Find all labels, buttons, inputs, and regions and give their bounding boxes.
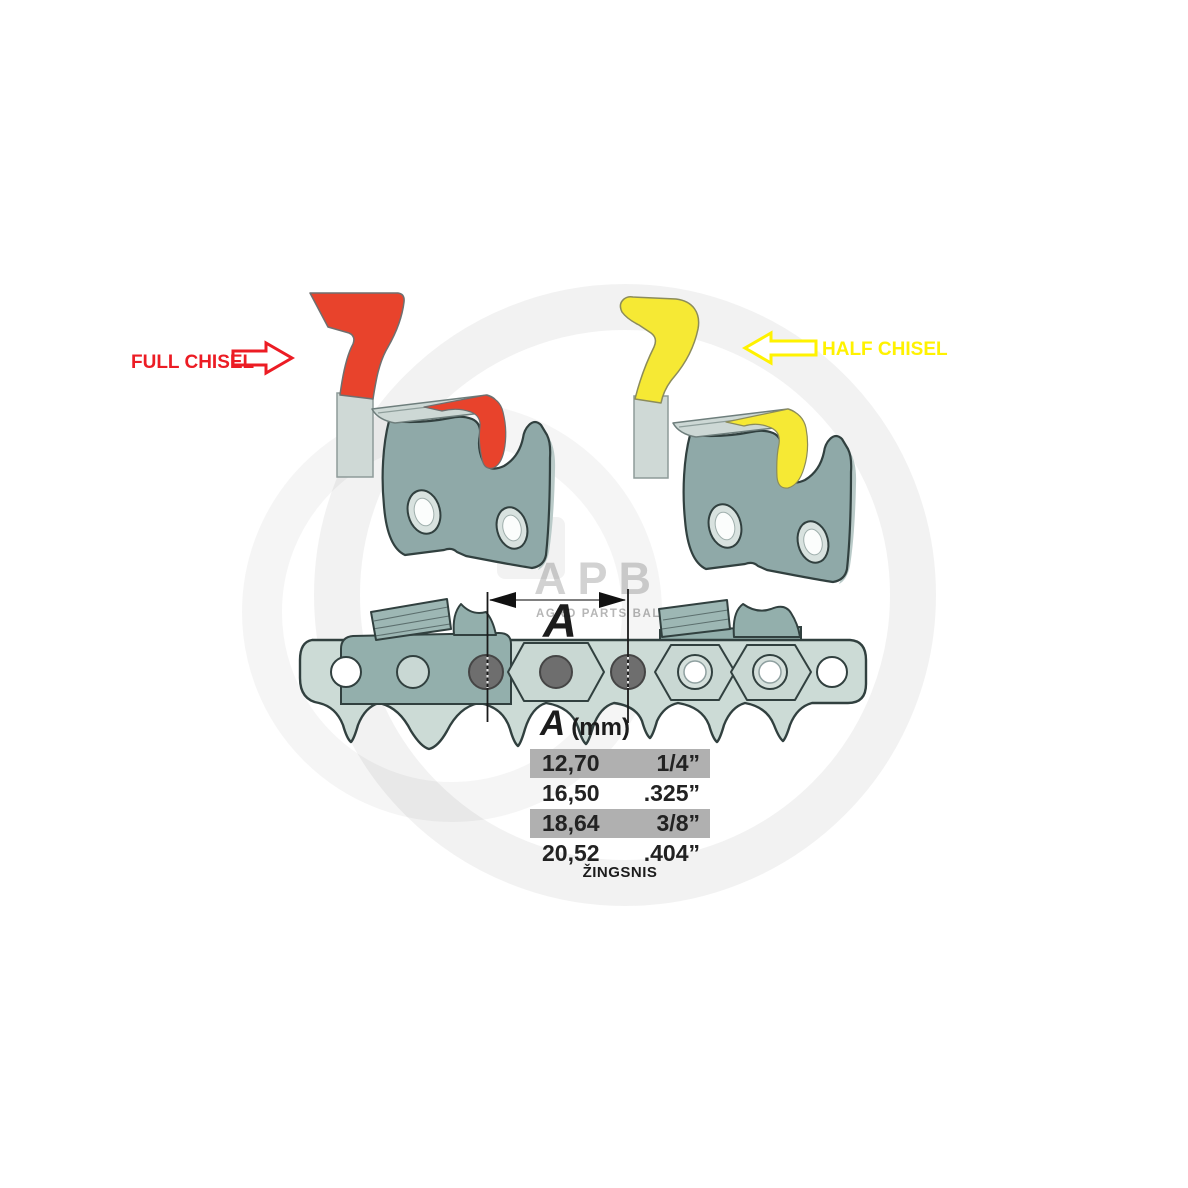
product-diagram: APB AGRO PARTS BALTIJA FULL CHISEL HALF … xyxy=(0,0,1188,1188)
pitch-mm: 18,64 xyxy=(542,810,600,837)
pitch-caption: ŽINGSNIS xyxy=(530,864,710,881)
full-chisel-label: FULL CHISEL xyxy=(131,352,254,374)
pitch-inch: .325” xyxy=(644,780,700,807)
half-chisel-cutter xyxy=(673,409,856,584)
half-chisel-label: HALF CHISEL xyxy=(822,339,948,361)
pitch-mm: 20,52 xyxy=(542,840,600,867)
pitch-inch: 1/4” xyxy=(657,750,700,777)
table-header-unit: (mm) xyxy=(571,714,630,742)
pitch-inch: 3/8” xyxy=(657,810,700,837)
table-header: A (mm) xyxy=(540,703,710,745)
table-row: 12,70 1/4” xyxy=(530,749,710,778)
table-row: 18,64 3/8” xyxy=(530,809,710,838)
pitch-inch: .404” xyxy=(644,840,700,867)
pitch-mm: 16,50 xyxy=(542,780,600,807)
table-header-dimension: A xyxy=(540,703,565,745)
pitch-mm: 12,70 xyxy=(542,750,600,777)
pitch-table: A (mm) 12,70 1/4” 16,50 .325” 18,64 3/8”… xyxy=(530,703,710,869)
table-row: 16,50 .325” xyxy=(530,779,710,808)
chain-illustration xyxy=(0,0,1188,1188)
pitch-dimension-label: A xyxy=(543,593,577,648)
